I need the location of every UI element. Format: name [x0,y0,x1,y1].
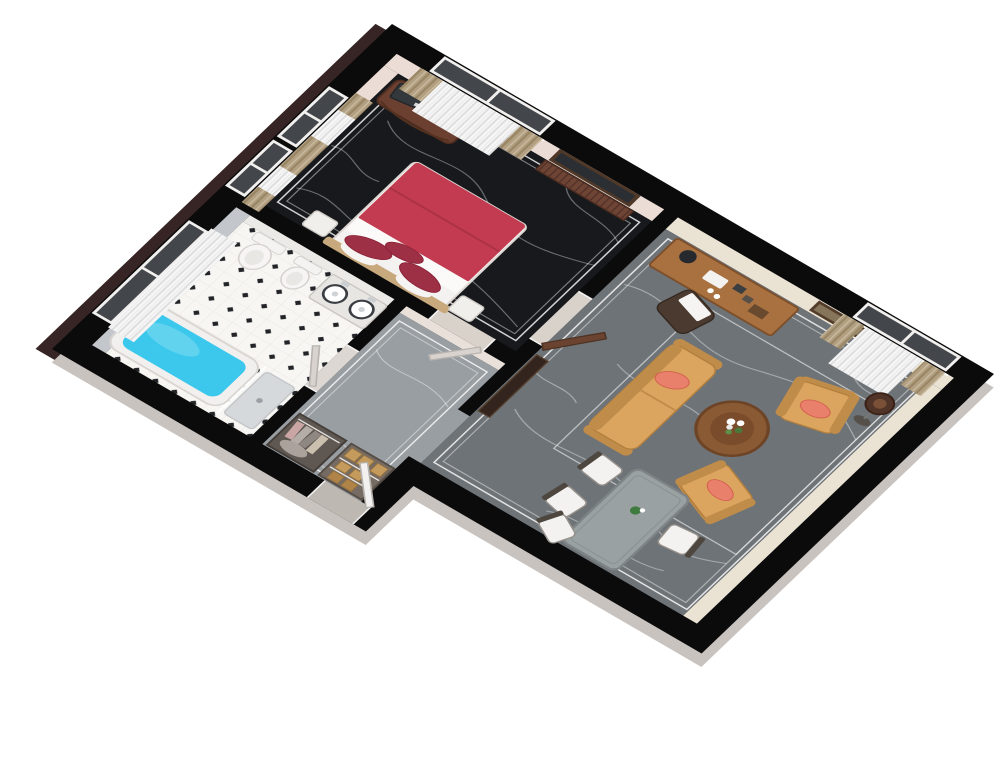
apartment-group [33,18,1000,712]
floor-plan-svg [0,0,1000,760]
floor-plan-render [0,0,1000,760]
